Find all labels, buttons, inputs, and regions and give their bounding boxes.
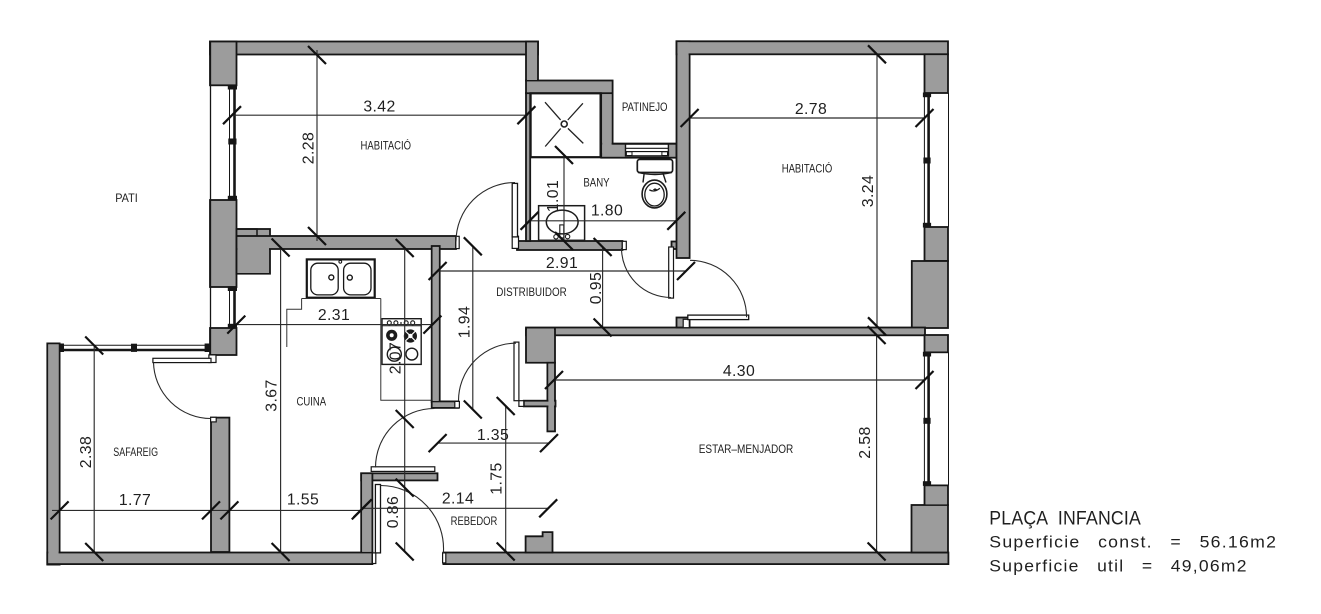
svg-text:Superficie util = 49,06m2: Superficie util = 49,06m2 (989, 557, 1247, 576)
svg-text:1.75: 1.75 (489, 462, 506, 494)
svg-text:1.35: 1.35 (477, 427, 509, 444)
svg-text:0.86: 0.86 (385, 496, 402, 528)
svg-text:Superficie const. = 56.16m2: Superficie const. = 56.16m2 (989, 533, 1277, 552)
svg-text:PATINEJO: PATINEJO (622, 100, 668, 114)
svg-text:3.67: 3.67 (264, 379, 281, 411)
svg-text:2.07: 2.07 (388, 342, 405, 374)
svg-text:1.94: 1.94 (457, 306, 474, 338)
svg-text:1.01: 1.01 (545, 180, 562, 212)
svg-text:2.14: 2.14 (442, 491, 474, 508)
svg-text:3.42: 3.42 (363, 99, 395, 116)
svg-text:PATI: PATI (115, 191, 138, 205)
svg-text:2.78: 2.78 (795, 101, 827, 118)
svg-text:SAFAREIG: SAFAREIG (113, 445, 158, 459)
svg-text:HABITACIÓ: HABITACIÓ (782, 162, 833, 176)
svg-text:DISTRIBUIDOR: DISTRIBUIDOR (496, 285, 566, 299)
svg-text:2.58: 2.58 (857, 426, 874, 458)
svg-text:CUINA: CUINA (296, 394, 326, 408)
svg-text:1.55: 1.55 (287, 492, 319, 509)
svg-text:1.77: 1.77 (119, 492, 151, 509)
svg-text:4.30: 4.30 (723, 363, 755, 380)
svg-text:ESTAR–MENJADOR: ESTAR–MENJADOR (699, 442, 794, 456)
svg-text:2.28: 2.28 (301, 132, 318, 164)
svg-text:PLAÇA INFANCIA: PLAÇA INFANCIA (989, 508, 1141, 530)
svg-text:2.31: 2.31 (318, 307, 350, 324)
svg-text:0.95: 0.95 (588, 272, 605, 304)
svg-text:3.24: 3.24 (860, 175, 877, 207)
svg-text:BANY: BANY (583, 175, 609, 189)
svg-text:2.38: 2.38 (78, 436, 95, 468)
svg-text:2.91: 2.91 (546, 255, 578, 272)
svg-text:1.80: 1.80 (591, 203, 623, 220)
svg-text:REBEDOR: REBEDOR (451, 514, 498, 528)
svg-text:HABITACIÓ: HABITACIÓ (361, 138, 412, 152)
